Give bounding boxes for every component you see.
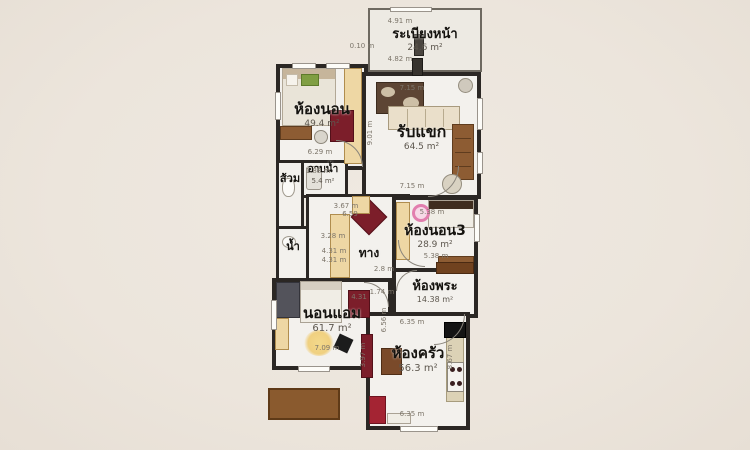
green-pillow[interactable]: [301, 74, 319, 86]
yellow-round-rug[interactable]: [304, 330, 334, 356]
dimension-label: 3.28 m: [321, 232, 346, 240]
dimension-label: 4.31: [351, 293, 367, 301]
dimension-label: 1.74 m: [370, 288, 395, 296]
window[interactable]: [271, 300, 277, 330]
window[interactable]: [298, 366, 330, 372]
toilet-seat[interactable]: [282, 178, 295, 197]
window[interactable]: [326, 63, 350, 69]
dimension-label: 3.97 m: [359, 343, 367, 368]
basin[interactable]: [282, 236, 296, 248]
dimension-label: 4.82 m: [388, 55, 413, 63]
room-area-prayer: 14.38 m²: [396, 295, 474, 304]
dimension-label: 6.59: [342, 210, 358, 218]
dimension-label: 5.38 m: [420, 208, 445, 216]
floor-plan-canvas[interactable]: ระเบียงหน้า 24.6 m² ห้องนอน 49.4 m² รับแ…: [0, 0, 750, 450]
room-water-closet[interactable]: น้ำ: [276, 226, 310, 284]
window[interactable]: [275, 92, 281, 120]
shelf[interactable]: [275, 318, 289, 350]
red-bench[interactable]: [369, 396, 386, 424]
dimension-label: 7.15 m: [400, 84, 425, 92]
dimension-label: 0.10 m: [350, 42, 375, 50]
window[interactable]: [292, 63, 316, 69]
bench[interactable]: [414, 34, 424, 56]
white-pillow[interactable]: [286, 74, 298, 86]
outdoor-desk[interactable]: [268, 388, 340, 420]
dark-wardrobe[interactable]: [276, 282, 300, 318]
dimension-label: 7.09 m: [315, 344, 340, 352]
dimension-label: 4.31 m: [322, 256, 347, 264]
room-area-balcony: 24.6 m²: [370, 43, 480, 53]
dimension-label: 6.29 m: [308, 148, 333, 156]
sofa[interactable]: [388, 106, 460, 130]
window[interactable]: [477, 152, 483, 174]
prayer-cabinet[interactable]: [436, 262, 474, 274]
dimension-label: 7.15 m: [400, 182, 425, 190]
entry-door[interactable]: [412, 58, 423, 76]
dimension-label: 9.01 m: [366, 121, 374, 146]
room-front-balcony[interactable]: ระเบียงหน้า 24.6 m²: [368, 8, 482, 72]
window[interactable]: [477, 98, 483, 130]
dimension-label: 6.35 m: [400, 318, 425, 326]
dimension-label: 1.88 m: [306, 167, 331, 175]
dimension-label: 3.67 m: [334, 202, 359, 210]
window[interactable]: [390, 7, 432, 12]
room-label-balcony: ระเบียงหน้า: [370, 28, 480, 42]
desk[interactable]: [280, 126, 312, 140]
dimension-label: 6.56 m: [380, 308, 388, 333]
office-chair[interactable]: [314, 130, 328, 144]
red-rug[interactable]: [330, 110, 354, 142]
side-table[interactable]: [458, 78, 473, 93]
window[interactable]: [400, 426, 438, 432]
dimension-label: 8.67 m: [446, 345, 454, 370]
dimension-label: 4.31 m: [322, 247, 347, 255]
closet[interactable]: [330, 214, 350, 278]
window[interactable]: [474, 214, 480, 242]
dimension-label: 5.38 m: [424, 252, 449, 260]
dining-set[interactable]: [381, 348, 402, 375]
dimension-label: 6.35 m: [400, 410, 425, 418]
dimension-label: 2.8 m: [374, 265, 394, 273]
bed[interactable]: [300, 281, 342, 323]
dimension-label: 4.91 m: [388, 17, 413, 25]
